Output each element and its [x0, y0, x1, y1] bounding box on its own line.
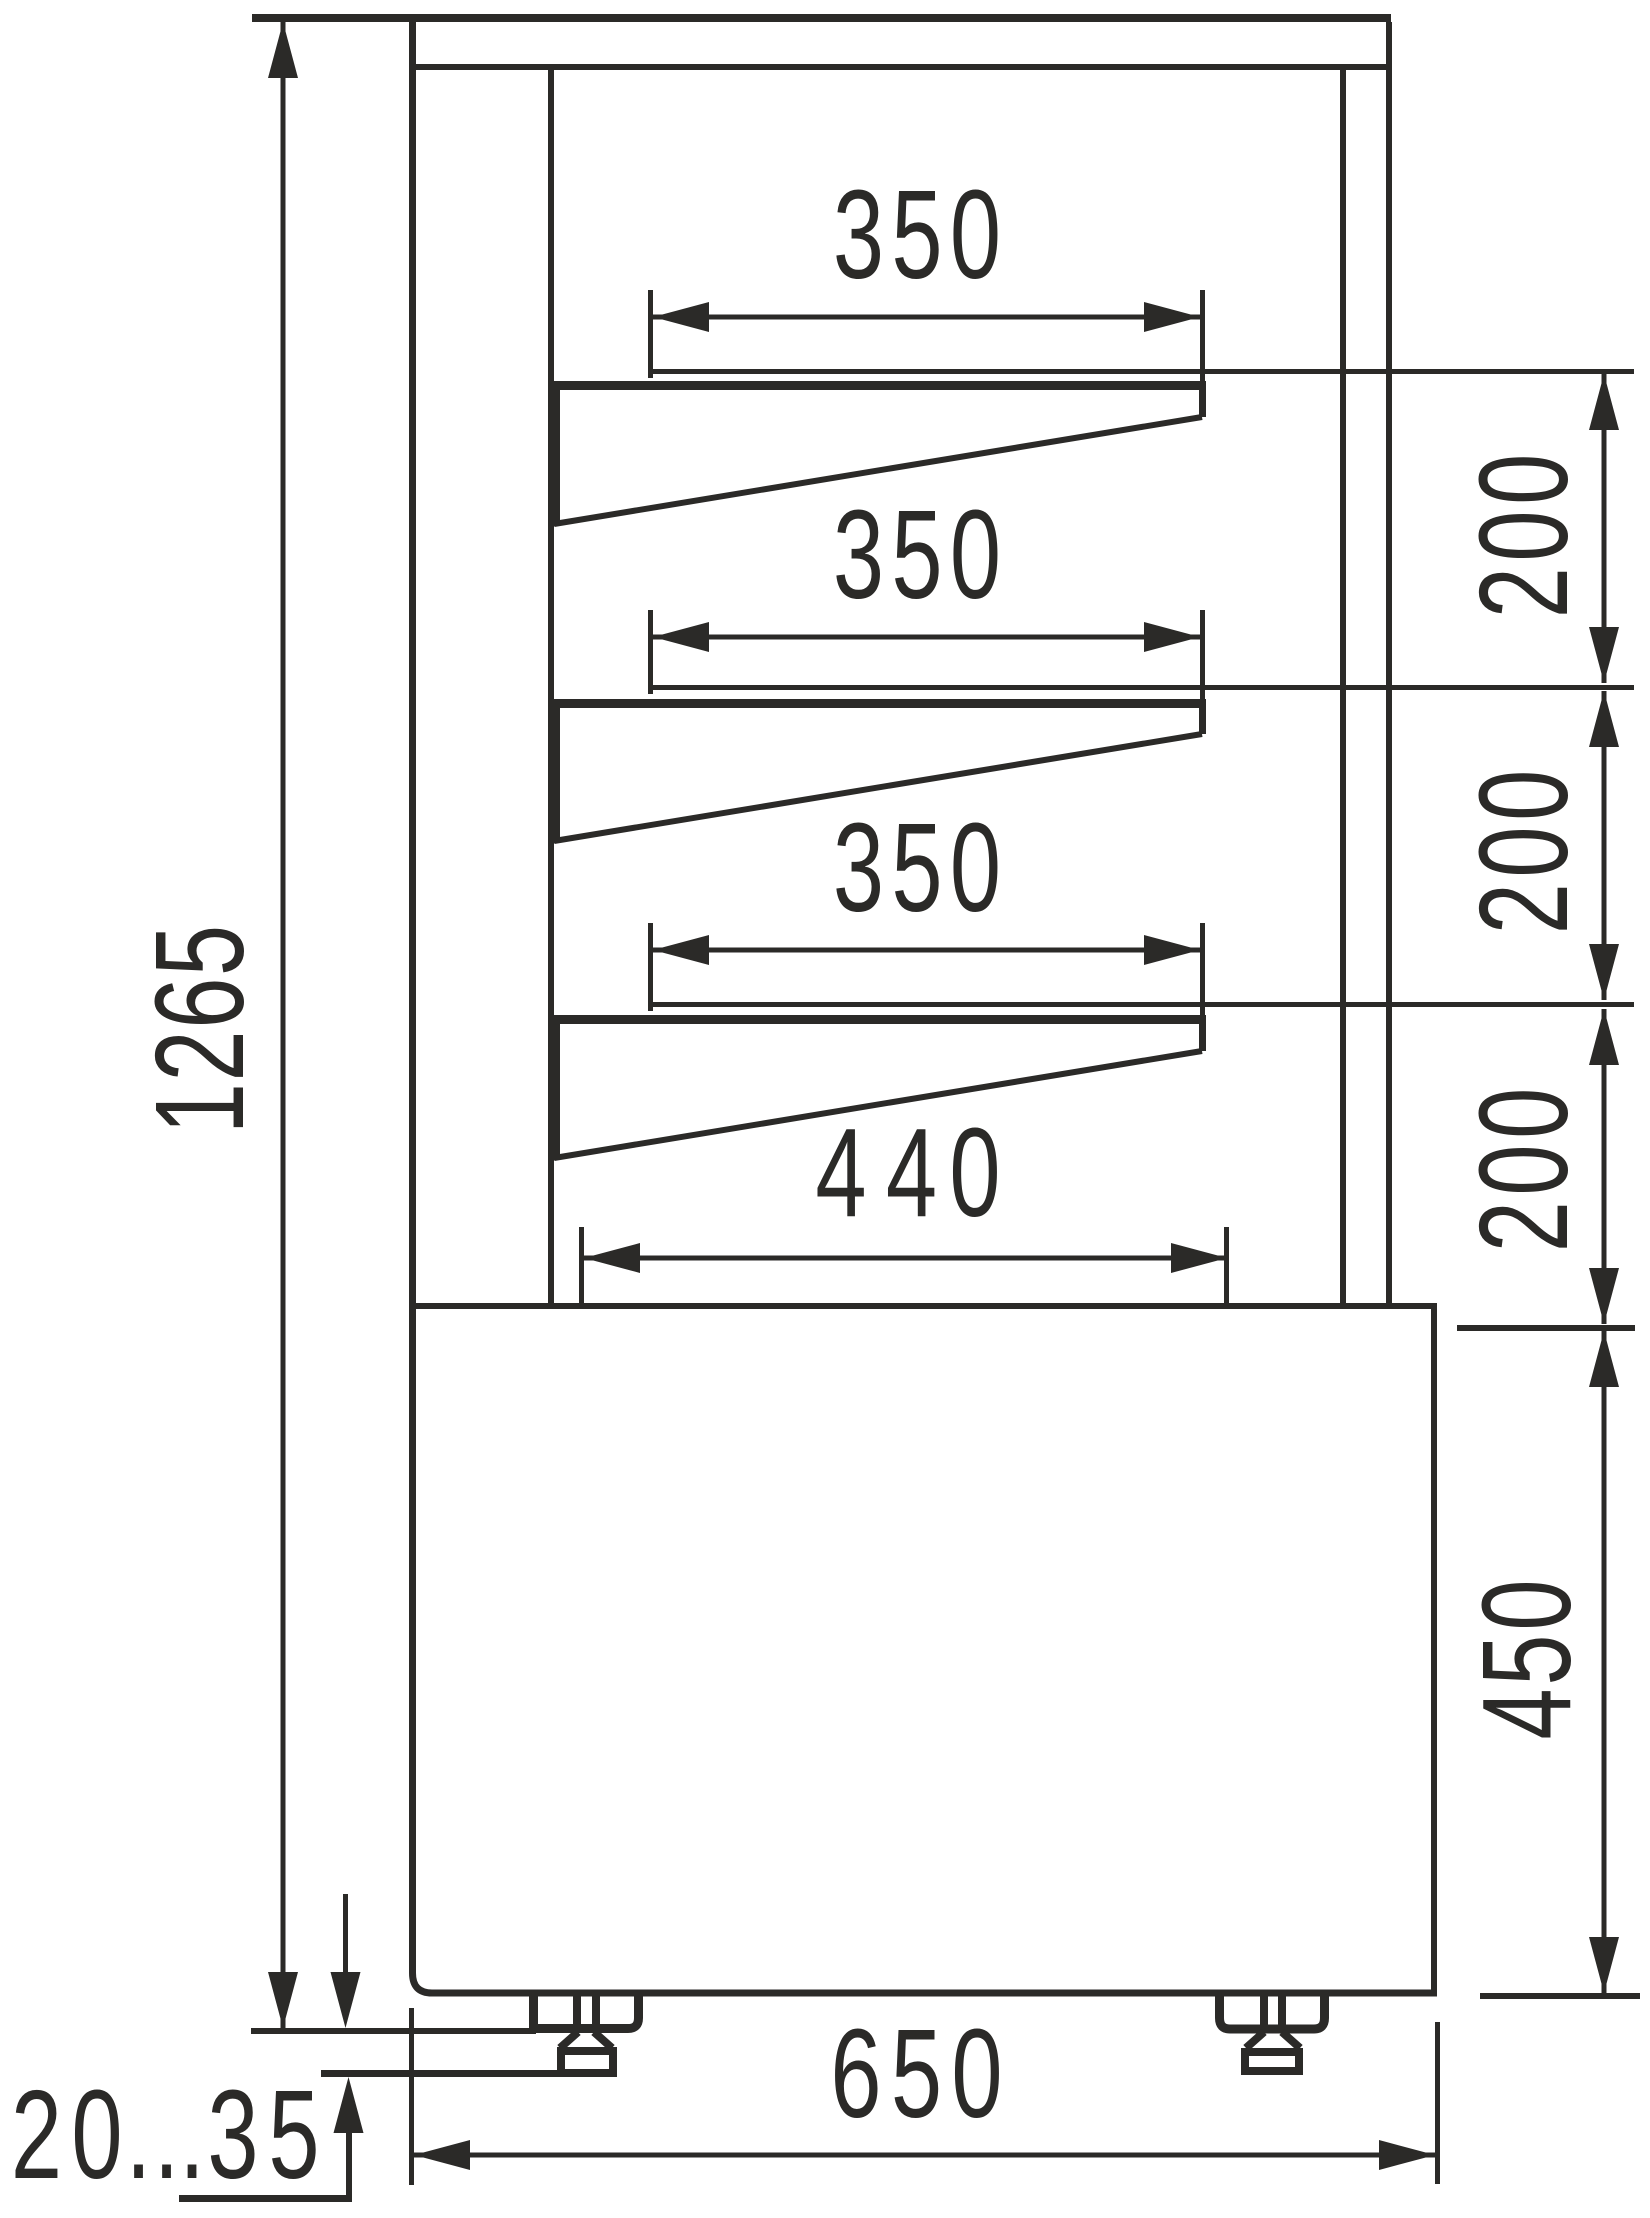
svg-text:.: . [154, 2065, 180, 2205]
svg-text:3: 3 [833, 485, 884, 625]
svg-text:2: 2 [1454, 883, 1594, 934]
svg-text:2: 2 [11, 2065, 62, 2205]
svg-text:6: 6 [130, 978, 270, 1029]
svg-text:4: 4 [886, 1103, 937, 1243]
svg-text:0: 0 [950, 798, 1001, 938]
svg-text:0: 0 [949, 1103, 1000, 1243]
svg-text:0: 0 [951, 2004, 1002, 2144]
svg-text:5: 5 [1457, 1634, 1597, 1685]
svg-text:0: 0 [1454, 1088, 1594, 1139]
svg-text:.: . [126, 2065, 152, 2205]
svg-text:2: 2 [1454, 567, 1594, 618]
svg-text:0: 0 [1454, 826, 1594, 877]
svg-text:3: 3 [207, 2065, 258, 2205]
svg-text:0: 0 [1454, 510, 1594, 561]
svg-text:0: 0 [950, 485, 1001, 625]
svg-text:2: 2 [130, 1030, 270, 1081]
svg-text:5: 5 [891, 165, 942, 305]
svg-text:5: 5 [130, 925, 270, 976]
svg-text:4: 4 [815, 1103, 866, 1243]
svg-text:0: 0 [1457, 1579, 1597, 1630]
svg-text:6: 6 [830, 2004, 881, 2144]
svg-text:0: 0 [1454, 454, 1594, 505]
svg-text:0: 0 [1454, 1144, 1594, 1195]
svg-text:5: 5 [891, 2004, 942, 2144]
svg-text:0: 0 [1454, 770, 1594, 821]
svg-text:1: 1 [130, 1083, 270, 1134]
svg-text:5: 5 [268, 2065, 319, 2205]
svg-text:5: 5 [891, 798, 942, 938]
svg-text:.: . [179, 2065, 205, 2205]
svg-text:3: 3 [833, 798, 884, 938]
svg-text:0: 0 [950, 165, 1001, 305]
svg-text:4: 4 [1457, 1688, 1597, 1739]
svg-text:5: 5 [891, 485, 942, 625]
svg-text:2: 2 [1454, 1201, 1594, 1252]
svg-text:3: 3 [833, 165, 884, 305]
svg-text:0: 0 [71, 2065, 122, 2205]
